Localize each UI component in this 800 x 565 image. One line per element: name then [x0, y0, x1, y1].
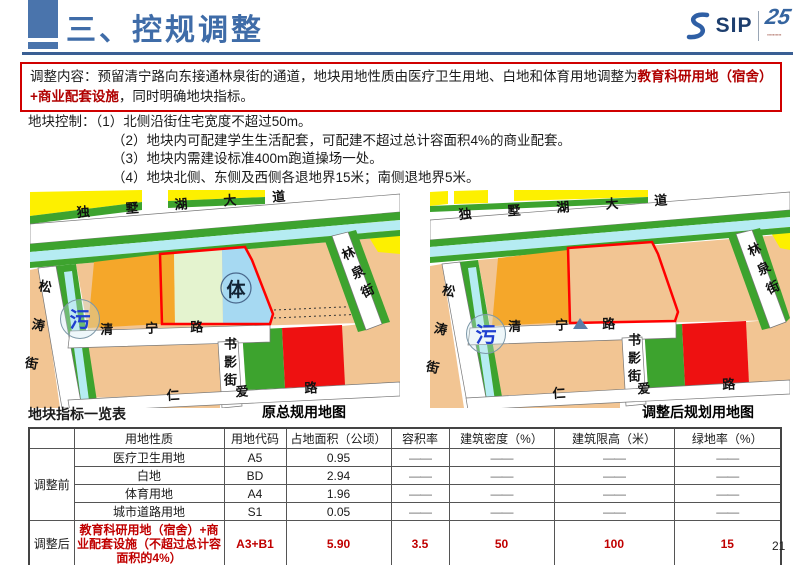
header-green: 绿地率（%） [674, 428, 781, 449]
adjustment-lead: 调整内容：预留清宁路向东接通林泉街的通道，地块用地性质由医疗卫生用地、白地和体育… [30, 69, 638, 84]
cell-code: A4 [224, 485, 286, 503]
cell-code: A5 [224, 449, 286, 467]
controls-item-4: （4）地块北侧、东侧及西侧各退地界15米；南侧退地界5米。 [28, 169, 780, 188]
after-label: 调整后 [29, 521, 74, 565]
cell-density: 50 [449, 521, 554, 565]
cell-code: A3+B1 [224, 521, 286, 565]
cell-dash: —— [674, 485, 781, 503]
sip-swoosh-icon [685, 11, 711, 41]
cell-area: 0.05 [286, 503, 391, 521]
cell-dash: —— [674, 449, 781, 467]
cell-dash: —— [449, 485, 554, 503]
cell-name: 体育用地 [74, 485, 224, 503]
road-label-qingning-road: 清宁路 [100, 315, 235, 338]
table-row: 调整前 医疗卫生用地 A5 0.95 —— —— —— —— [29, 449, 781, 467]
title-decoration-square [28, 0, 58, 38]
page-title: 三、控规调整 [66, 5, 264, 49]
cell-dash: —— [674, 503, 781, 521]
adjusted-map-caption: 调整后规划用地图 [642, 402, 754, 422]
cell-dash: —— [391, 503, 449, 521]
controls-lead: 地块控制： [28, 114, 96, 129]
adjustment-tail: ，同时明确地块指标。 [119, 89, 254, 104]
header-area: 占地面积（公顷） [286, 428, 391, 449]
header-height: 建筑限高（米） [554, 428, 674, 449]
header-code: 用地代码 [224, 428, 286, 449]
header-density: 建筑密度（%） [449, 428, 554, 449]
cell-area: 1.96 [286, 485, 391, 503]
cell-far: 3.5 [391, 521, 449, 565]
cell-area: 0.95 [286, 449, 391, 467]
cell-dash: —— [674, 467, 781, 485]
table-row: 城市道路用地 S1 0.05 —— —— —— —— [29, 503, 781, 521]
cell-height: 100 [554, 521, 674, 565]
anniversary-25-mark: 25 ▪▪▪▪▪▪▪▪▪▪ [760, 8, 792, 44]
adjusted-landuse-map: 独墅湖大道 松涛街 清宁路 书影街 仁爱路 林泉街 污 调整后规划用地图 [430, 190, 790, 422]
road-label-qingning-road: 清宁路 [508, 312, 649, 335]
table-title: 地块指标一览表 [28, 404, 126, 424]
cell-dash: —— [391, 485, 449, 503]
cell-area: 2.94 [286, 467, 391, 485]
sip-logo: SIP 25 ▪▪▪▪▪▪▪▪▪▪ [685, 8, 788, 44]
cell-dash: —— [554, 503, 674, 521]
original-map-caption: 原总规用地图 [262, 402, 346, 422]
cell-green: 15 [674, 521, 781, 565]
title-decoration-bar [28, 42, 58, 49]
table-header-row: 用地性质 用地代码 占地面积（公顷） 容积率 建筑密度（%） 建筑限高（米） 绿… [29, 428, 781, 449]
cell-name: 白地 [74, 467, 224, 485]
table-row: 白地 BD 2.94 —— —— —— —— [29, 467, 781, 485]
header-landuse: 用地性质 [74, 428, 224, 449]
cell-dash: —— [391, 449, 449, 467]
cell-area: 5.90 [286, 521, 391, 565]
cell-name: 医疗卫生用地 [74, 449, 224, 467]
before-label: 调整前 [29, 449, 74, 521]
cell-dash: —— [449, 503, 554, 521]
controls-item-1: （1）北侧沿街住宅宽度不超过50m。 [96, 114, 312, 129]
page-number: 21 [772, 539, 785, 553]
cell-dash: —— [391, 467, 449, 485]
cell-dash: —— [554, 467, 674, 485]
cell-name: 教育科研用地（宿舍）+商业配套设施（不超过总计容面积的4%） [74, 521, 224, 565]
plot-indicator-table: 用地性质 用地代码 占地面积（公顷） 容积率 建筑密度（%） 建筑限高（米） 绿… [28, 427, 782, 565]
sports-landuse-symbol: 体 [220, 272, 252, 304]
header-far: 容积率 [391, 428, 449, 449]
logo-divider [758, 11, 759, 41]
cell-name: 城市道路用地 [74, 503, 224, 521]
table-row: 体育用地 A4 1.96 —— —— —— —— [29, 485, 781, 503]
adjustment-notice-box: 调整内容：预留清宁路向东接通林泉街的通道，地块用地性质由医疗卫生用地、白地和体育… [20, 62, 782, 112]
header-divider [22, 52, 793, 55]
cell-code: S1 [224, 503, 286, 521]
cell-dash: —— [554, 485, 674, 503]
controls-line-1: 地块控制：（1）北侧沿街住宅宽度不超过50m。 [28, 113, 780, 132]
header-blank [29, 428, 74, 449]
sewage-plant-symbol: 污 [466, 314, 506, 354]
cell-dash: —— [554, 449, 674, 467]
plot-controls: 地块控制：（1）北侧沿街住宅宽度不超过50m。 （2）地块内可配建学生生活配套，… [28, 113, 780, 187]
controls-item-2: （2）地块内可配建学生生活配套，可配建不超过总计容面积4%的商业配套。 [28, 132, 780, 151]
sewage-plant-symbol: 污 [60, 299, 100, 339]
cell-dash: —— [449, 467, 554, 485]
sip-logo-text: SIP [716, 14, 753, 38]
cell-code: BD [224, 467, 286, 485]
anniversary-caption: ▪▪▪▪▪▪▪▪▪▪ [762, 26, 786, 44]
table-row-after: 调整后 教育科研用地（宿舍）+商业配套设施（不超过总计容面积的4%） A3+B1… [29, 521, 781, 565]
original-landuse-map: 独墅湖大道 松涛街 清宁路 书影街 仁爱路 林泉街 体 污 原总规用地图 [30, 190, 400, 422]
controls-item-3: （3）地块内需建设标准400m跑道操场一处。 [28, 150, 780, 169]
cell-dash: —— [449, 449, 554, 467]
slide: 三、控规调整 SIP 25 ▪▪▪▪▪▪▪▪▪▪ 调整内容：预留清宁路向东接通林… [0, 0, 800, 565]
